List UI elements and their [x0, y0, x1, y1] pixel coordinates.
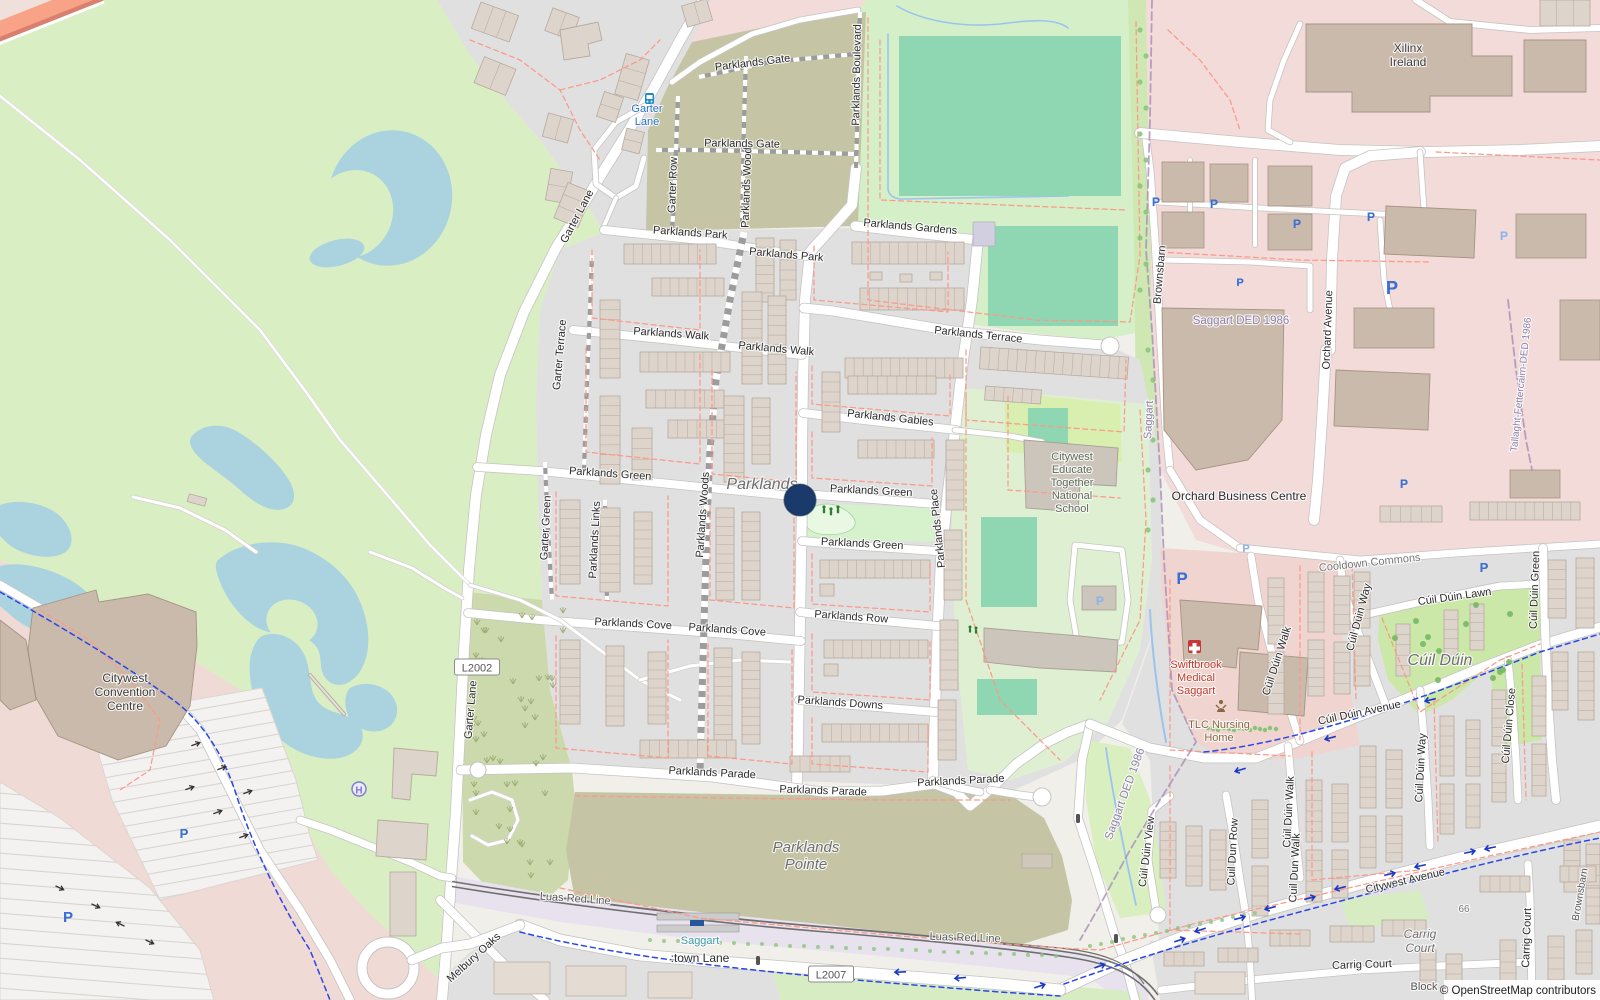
svg-text:P: P	[1367, 210, 1375, 224]
svg-text:School: School	[1055, 503, 1089, 515]
svg-text:Garter: Garter	[631, 103, 663, 115]
svg-text:Block: Block	[1411, 981, 1438, 993]
svg-text:Ireland: Ireland	[1390, 55, 1427, 69]
svg-text:P: P	[1152, 195, 1160, 209]
svg-text:Saggart: Saggart	[681, 935, 720, 947]
svg-text:P: P	[1500, 229, 1508, 243]
svg-text:Parklands Boulevard: Parklands Boulevard	[850, 24, 864, 126]
svg-text:P: P	[180, 826, 189, 841]
svg-text:TLC Nursing: TLC Nursing	[1188, 719, 1250, 731]
svg-text:© OpenStreetMap contributors: © OpenStreetMap contributors	[1440, 985, 1596, 997]
svg-text:Cúil Dúin: Cúil Dúin	[1408, 652, 1473, 669]
svg-text:Saggart DED 1986: Saggart DED 1986	[1193, 315, 1290, 327]
svg-text:P: P	[1242, 543, 1249, 555]
svg-text:Carrig Court: Carrig Court	[1520, 908, 1534, 968]
svg-text:P: P	[1293, 217, 1301, 231]
svg-text:Home: Home	[1204, 732, 1233, 744]
svg-text:Xilinx: Xilinx	[1394, 41, 1423, 55]
svg-text:66: 66	[1458, 904, 1470, 915]
svg-text:Parklands Gate: Parklands Gate	[704, 137, 780, 150]
svg-text:Citywest: Citywest	[1051, 451, 1093, 463]
svg-text:Medical: Medical	[1177, 672, 1215, 684]
svg-text:Pointe: Pointe	[785, 856, 828, 873]
svg-text:P: P	[1236, 277, 1243, 289]
svg-text:L2002: L2002	[462, 663, 493, 675]
svg-text:P: P	[1386, 278, 1398, 298]
svg-text:Centre: Centre	[107, 699, 143, 713]
svg-text:Carrig Court: Carrig Court	[1332, 958, 1392, 972]
svg-text:P: P	[1400, 477, 1408, 491]
svg-text:Convention: Convention	[95, 685, 156, 699]
svg-text:P: P	[1210, 197, 1218, 211]
svg-text:L2007: L2007	[816, 970, 847, 982]
svg-text:Orchard Business Centre: Orchard Business Centre	[1172, 489, 1307, 503]
svg-text:P: P	[1480, 560, 1489, 575]
svg-text::town Lane: :town Lane	[671, 951, 730, 965]
svg-text:National: National	[1052, 490, 1092, 502]
svg-text:Citywest: Citywest	[102, 671, 148, 685]
svg-text:Parklands: Parklands	[773, 839, 840, 856]
svg-text:Luas Red Line: Luas Red Line	[929, 931, 1000, 945]
svg-text:P: P	[1096, 594, 1104, 608]
svg-text:Swiftbrook: Swiftbrook	[1170, 659, 1222, 671]
svg-text:H: H	[355, 786, 362, 797]
svg-text:Saggart: Saggart	[1177, 685, 1216, 697]
svg-text:P: P	[63, 909, 73, 926]
svg-text:Together: Together	[1051, 477, 1094, 489]
svg-text:Carrig: Carrig	[1404, 927, 1437, 941]
svg-text:Educate: Educate	[1052, 464, 1092, 476]
svg-text:P: P	[1176, 569, 1187, 588]
svg-text:Garter Row: Garter Row	[666, 157, 680, 214]
svg-text:Court: Court	[1405, 941, 1435, 955]
svg-text:Lane: Lane	[635, 116, 659, 128]
svg-text:Saggart: Saggart	[1142, 400, 1156, 439]
